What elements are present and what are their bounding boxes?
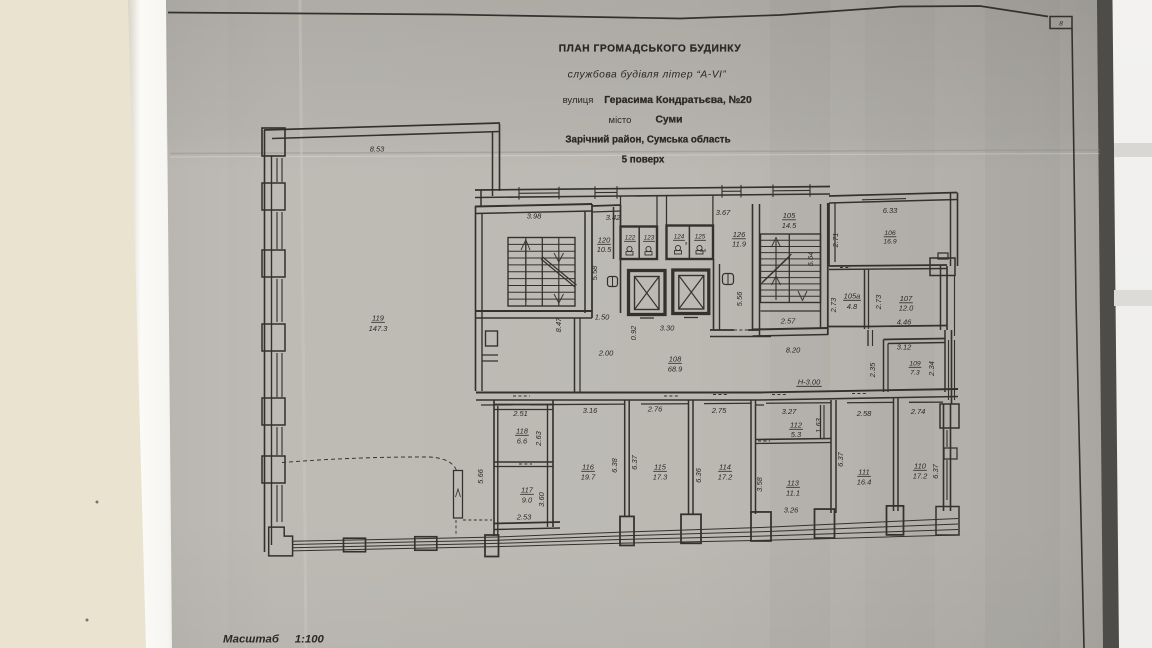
svg-text:4.46: 4.46 xyxy=(897,318,912,327)
svg-text:16.9: 16.9 xyxy=(883,239,896,246)
svg-text:3.60: 3.60 xyxy=(537,491,546,506)
svg-text:8: 8 xyxy=(1059,21,1063,28)
svg-text:6.37: 6.37 xyxy=(630,454,639,469)
svg-text:6.37: 6.37 xyxy=(931,463,940,478)
svg-text:2.53: 2.53 xyxy=(516,513,532,522)
svg-text:ПЛАН ГРОМАДСЬКОГО БУДИНКУ: ПЛАН ГРОМАДСЬКОГО БУДИНКУ xyxy=(559,44,742,55)
svg-text:2.35: 2.35 xyxy=(868,362,877,378)
svg-text:105а: 105а xyxy=(844,292,861,301)
svg-text:1.63: 1.63 xyxy=(814,417,823,432)
svg-text:17.3: 17.3 xyxy=(653,473,668,482)
svg-text:9.0: 9.0 xyxy=(522,496,533,505)
svg-text:2.58: 2.58 xyxy=(856,409,872,418)
svg-text:113: 113 xyxy=(787,479,800,488)
svg-text:68.9: 68.9 xyxy=(668,365,683,374)
svg-text:115: 115 xyxy=(654,463,667,472)
svg-text:112: 112 xyxy=(790,421,803,430)
svg-text:Н-3.00: Н-3.00 xyxy=(798,378,821,387)
svg-text:117: 117 xyxy=(521,486,534,495)
svg-text:14.5: 14.5 xyxy=(782,221,797,230)
svg-text:122: 122 xyxy=(625,235,636,242)
svg-text:Масштаб 1:100: Масштаб 1:100 xyxy=(223,634,325,646)
svg-text:123: 123 xyxy=(644,235,655,242)
svg-text:1.50: 1.50 xyxy=(595,313,610,322)
svg-text:106: 106 xyxy=(884,230,896,237)
svg-text:9: 9 xyxy=(685,241,688,246)
svg-text:5 поверх: 5 поверх xyxy=(622,155,665,166)
svg-text:8.20: 8.20 xyxy=(786,346,801,355)
svg-text:6.6: 6.6 xyxy=(517,437,528,446)
svg-text:3.58: 3.58 xyxy=(755,476,764,491)
svg-text:110: 110 xyxy=(914,462,927,471)
svg-text:3.67: 3.67 xyxy=(716,208,731,217)
svg-text:5.3: 5.3 xyxy=(791,430,802,439)
svg-text:17.2: 17.2 xyxy=(718,473,733,482)
svg-text:Герасима Кондратьєва, №20: Герасима Кондратьєва, №20 xyxy=(604,95,752,106)
svg-text:120: 120 xyxy=(598,236,611,245)
svg-text:місто: місто xyxy=(609,115,632,126)
svg-text:2.63: 2.63 xyxy=(534,430,543,446)
svg-text:12.0: 12.0 xyxy=(899,304,914,313)
svg-text:2.00: 2.00 xyxy=(598,349,614,358)
svg-text:116: 116 xyxy=(582,463,595,472)
svg-text:вулиця: вулиця xyxy=(563,95,594,106)
svg-text:111: 111 xyxy=(858,468,869,477)
svg-text:3.16: 3.16 xyxy=(583,406,598,415)
svg-text:107: 107 xyxy=(900,294,913,303)
svg-text:124: 124 xyxy=(674,234,685,241)
svg-text:4.8: 4.8 xyxy=(847,302,858,311)
svg-text:108: 108 xyxy=(669,355,682,364)
svg-text:Суми: Суми xyxy=(656,115,683,126)
svg-text:2.34: 2.34 xyxy=(927,361,936,377)
svg-text:6.38: 6.38 xyxy=(610,457,619,472)
svg-text:16.4: 16.4 xyxy=(857,478,872,487)
svg-text:3.42: 3.42 xyxy=(606,213,621,222)
svg-text:2.73: 2.73 xyxy=(829,297,838,313)
svg-text:2.75: 2.75 xyxy=(711,406,727,415)
svg-text:6.37: 6.37 xyxy=(836,451,845,466)
svg-text:5.56: 5.56 xyxy=(735,291,744,306)
svg-text:3.12: 3.12 xyxy=(897,343,912,352)
svg-text:7.3: 7.3 xyxy=(910,370,920,377)
svg-text:11.9: 11.9 xyxy=(732,240,747,249)
svg-text:Зарічний район, Сумська област: Зарічний район, Сумська область xyxy=(565,135,730,146)
svg-text:3.26: 3.26 xyxy=(784,506,799,515)
svg-text:2.57: 2.57 xyxy=(780,317,796,326)
svg-text:6.36: 6.36 xyxy=(694,467,703,482)
svg-text:126: 126 xyxy=(733,230,746,239)
svg-text:147.3: 147.3 xyxy=(369,324,389,333)
svg-text:3.30: 3.30 xyxy=(660,324,675,333)
svg-text:3.27: 3.27 xyxy=(782,407,797,416)
svg-text:2.76: 2.76 xyxy=(647,405,663,414)
svg-text:8.47: 8.47 xyxy=(554,317,563,332)
svg-text:службова будівля літер “А-VI”: службова будівля літер “А-VI” xyxy=(568,69,727,81)
svg-text:0.8: 0.8 xyxy=(700,248,706,253)
svg-text:0.92: 0.92 xyxy=(629,325,638,340)
svg-text:105: 105 xyxy=(783,211,796,220)
svg-text:2.51: 2.51 xyxy=(512,409,528,418)
svg-text:119: 119 xyxy=(372,314,385,323)
svg-text:118: 118 xyxy=(516,427,529,436)
svg-text:8.53: 8.53 xyxy=(370,145,385,154)
svg-text:5.66: 5.66 xyxy=(476,468,485,483)
svg-text:2.73: 2.73 xyxy=(874,294,883,310)
svg-text:2.71: 2.71 xyxy=(831,233,840,249)
svg-text:109: 109 xyxy=(909,361,921,368)
svg-text:125: 125 xyxy=(695,234,706,241)
svg-text:2.74: 2.74 xyxy=(910,407,926,416)
svg-text:3.98: 3.98 xyxy=(527,212,542,221)
svg-text:11.1: 11.1 xyxy=(786,489,800,498)
svg-text:17.2: 17.2 xyxy=(913,472,928,481)
svg-text:19.7: 19.7 xyxy=(581,473,596,482)
svg-text:5.58: 5.58 xyxy=(590,265,599,280)
svg-text:10.5: 10.5 xyxy=(597,245,612,254)
svg-text:5.64: 5.64 xyxy=(806,252,815,267)
svg-text:114: 114 xyxy=(719,463,731,472)
svg-text:6.33: 6.33 xyxy=(883,206,898,215)
